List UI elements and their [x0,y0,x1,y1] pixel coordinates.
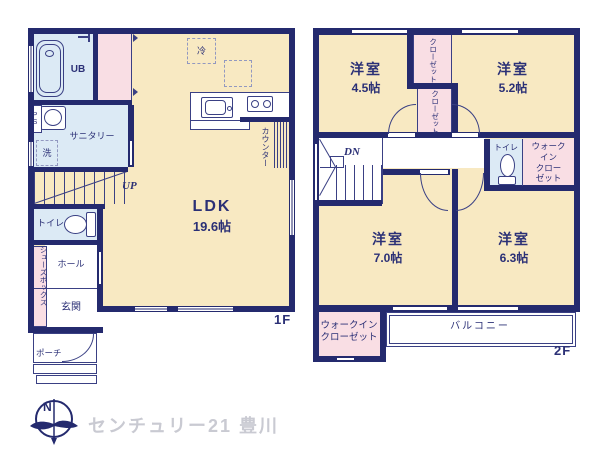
wall [484,185,580,191]
up-label: UP [122,180,137,193]
toilet-tank-icon [498,176,516,185]
window [135,306,167,312]
sink-basin-icon [205,100,226,115]
window [28,46,34,92]
toilet-2f-label: トイレ [490,142,522,153]
storage-strip [98,33,132,100]
room63-label: 洋室 6.3帖 [478,226,550,268]
window [337,357,354,361]
room52-label: 洋室 5.2帖 [477,56,549,98]
ub-label: UB [62,63,94,77]
toilet-1f-label: トイレ [37,218,64,228]
cupboard-space [224,60,252,87]
counter-label: カウンター [256,127,269,175]
fridge-label: 冷 [197,46,206,56]
floor1-label: 1F [274,313,291,328]
sanitary-label: サニタリー [62,130,122,142]
ldk-label: LDK 19.6帖 [167,194,257,238]
closet-b-label: クローゼット [417,88,452,136]
wic-side-label: ウォーク イン クロー ゼット [523,140,574,185]
wall [289,28,295,312]
porch-step [36,375,97,384]
stairs-treads [336,165,382,204]
wall [28,28,295,34]
drain-icon [45,50,54,57]
door-marker-icon [133,34,142,42]
hall-label: ホール [50,258,92,270]
partition-line [382,138,383,204]
toilet-bowl-icon [64,215,87,234]
burner-icon [263,100,271,108]
wall [28,240,103,245]
window [314,144,318,200]
wall [28,100,132,105]
window [178,306,233,312]
toilet-tank-icon [86,212,96,237]
window [462,29,518,34]
window [393,306,447,311]
washer-space: 洗 [36,140,58,166]
porch-step [33,364,97,374]
porch-label: ポーチ [36,349,62,359]
faucet-icon [227,106,232,111]
fridge-space: 冷 [187,38,216,64]
wall [28,327,103,333]
shower-icon [88,34,90,42]
washer-label: 洗 [42,148,51,158]
wic-bottom-label: ウォークイン クローゼット [316,317,382,347]
wall [313,200,382,206]
window [352,29,407,34]
wall [28,204,105,209]
burner-icon [251,100,259,108]
dn-label: DN [344,146,360,159]
counter-hatch [274,122,288,168]
vanity-bowl-icon [44,109,62,126]
floor2-label: 2F [554,344,571,359]
door-opening [129,141,133,165]
room45-label: 洋室 4.5帖 [330,56,402,98]
room70-label: 洋室 7.0帖 [352,226,424,268]
balcony-label: バルコニー [430,320,530,334]
door-marker-icon [133,88,142,96]
brand-text: センチュリー21 豊川 [88,416,279,437]
closet-a-label: クローゼット [413,36,452,84]
door-opening [98,252,102,284]
wall [28,167,128,172]
stairs-diagonal [320,167,336,168]
shoebox-label: シューズボックス [31,246,47,304]
entrance-label: 玄関 [54,302,88,314]
window [289,180,295,235]
wall [574,28,580,312]
floorplan-canvas: 洗 PS 冷 UB サニタリー LDK 19.6帖 UP トイレ シューズボック… [0,0,600,450]
window [28,142,34,166]
window [458,306,518,311]
compass-n-label: N [43,400,52,414]
toilet-bowl-icon [500,154,515,177]
compass-icon: N [26,394,82,450]
wall [240,117,290,122]
